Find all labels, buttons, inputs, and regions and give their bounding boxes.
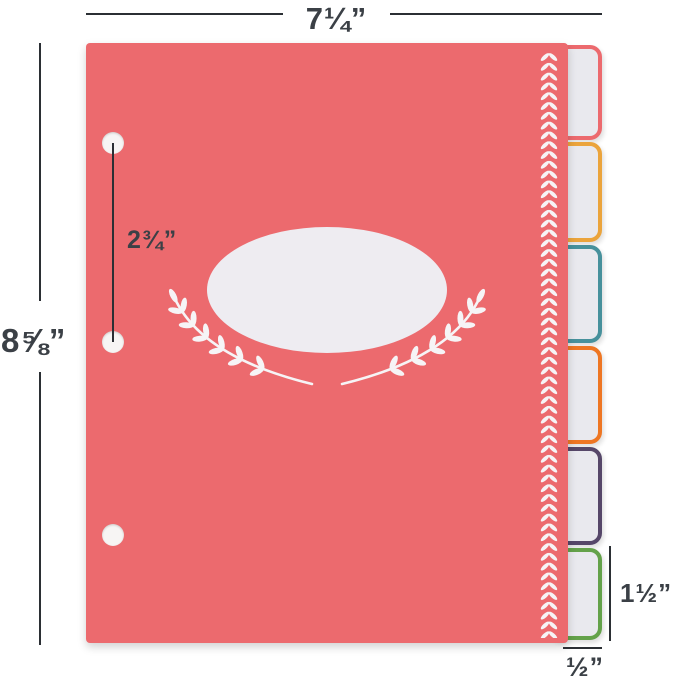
hole-spacing-dimension-line xyxy=(112,143,114,342)
stitch-pattern-decoration xyxy=(539,50,559,638)
product-image: 7¼” 8⅝” 2¾” 1½” ½” xyxy=(0,0,679,685)
tab-width-dimension-label: ½” xyxy=(566,654,604,681)
tab-width-dimension-line xyxy=(563,647,602,649)
label-oval xyxy=(207,227,447,353)
height-dimension-label: 8⅝” xyxy=(1,324,83,357)
width-dimension-line-right xyxy=(390,13,602,15)
width-dimension-label: 7¼” xyxy=(283,3,390,34)
tab-height-dimension-label: 1½” xyxy=(620,580,672,606)
punch-hole-3 xyxy=(102,524,124,546)
tab-height-dimension-line xyxy=(609,546,611,641)
height-dimension-line-top xyxy=(39,43,41,301)
hole-spacing-dimension-label: 2¾” xyxy=(127,228,177,253)
height-dimension-line-bottom xyxy=(39,372,41,645)
width-dimension-line-left xyxy=(86,13,283,15)
